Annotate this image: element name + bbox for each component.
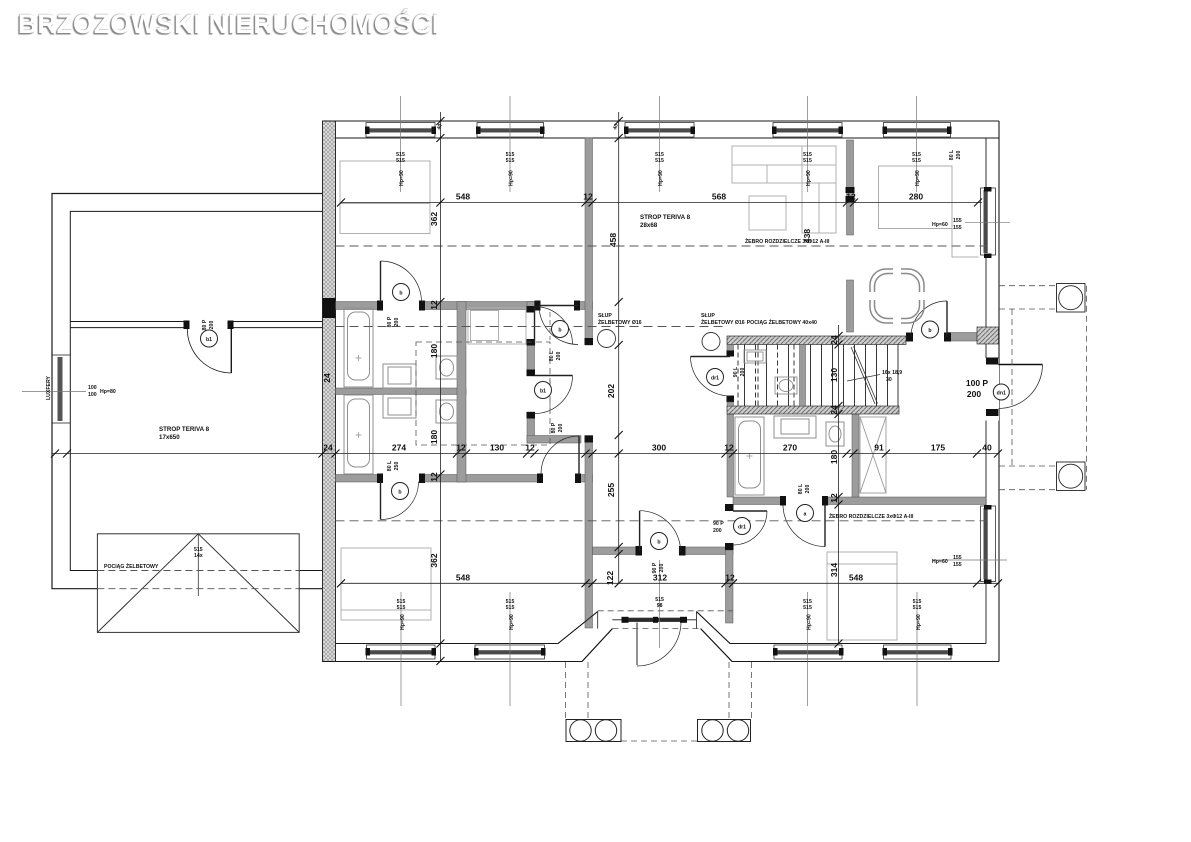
svg-text:Hp=60: Hp=60: [932, 559, 948, 565]
svg-text:250: 250: [394, 462, 400, 471]
svg-text:515: 515: [655, 158, 664, 164]
svg-text:200: 200: [209, 321, 215, 330]
svg-text:Hp=90: Hp=90: [807, 614, 813, 630]
svg-text:STROP TERIVA 8: STROP TERIVA 8: [640, 214, 691, 221]
svg-text:80 L: 80 L: [387, 460, 393, 471]
svg-text:155: 155: [953, 562, 962, 568]
svg-text:Hp=90: Hp=90: [509, 614, 515, 630]
svg-text:100: 100: [88, 385, 97, 391]
svg-text:Hp=90: Hp=90: [658, 170, 664, 186]
svg-text:b1: b1: [540, 389, 546, 395]
svg-text:Hp=80: Hp=80: [100, 389, 116, 395]
svg-text:90 P: 90 P: [713, 521, 724, 527]
svg-text:90 L: 90 L: [733, 366, 739, 377]
svg-text:ŻELBETOWY Ø16: ŻELBETOWY Ø16: [598, 319, 642, 326]
svg-text:80 L: 80 L: [949, 149, 955, 160]
svg-text:90 P: 90 P: [652, 562, 658, 573]
svg-text:80 L: 80 L: [549, 350, 555, 361]
svg-text:Hp=90: Hp=90: [400, 614, 406, 630]
svg-text:515: 515: [506, 158, 515, 164]
svg-text:POCIĄG ŻELBETOWY: POCIĄG ŻELBETOWY: [104, 563, 159, 570]
svg-text:80 P: 80 P: [551, 422, 557, 433]
svg-text:Hp=90: Hp=90: [806, 170, 812, 186]
svg-text:200: 200: [805, 485, 811, 494]
svg-text:200: 200: [956, 151, 962, 160]
svg-text:40: 40: [436, 123, 444, 131]
svg-text:98: 98: [657, 603, 663, 609]
svg-text:515: 515: [506, 605, 515, 611]
svg-text:200: 200: [394, 318, 400, 327]
svg-text:LUXFERY: LUXFERY: [46, 375, 52, 400]
svg-text:b: b: [399, 291, 402, 297]
svg-text:Hp=60: Hp=60: [932, 222, 948, 228]
svg-text:SŁUP: SŁUP: [598, 313, 612, 319]
svg-text:515: 515: [803, 158, 812, 164]
svg-text:515: 515: [913, 605, 922, 611]
svg-text:b: b: [928, 328, 931, 334]
svg-text:dn1: dn1: [997, 391, 1006, 397]
svg-text:14x: 14x: [194, 553, 203, 559]
svg-text:STROP TERIVA 8: STROP TERIVA 8: [159, 426, 210, 433]
svg-text:SŁUP: SŁUP: [701, 313, 715, 319]
svg-text:Hp=90: Hp=90: [916, 614, 922, 630]
svg-text:a: a: [804, 512, 807, 518]
svg-text:b: b: [558, 328, 561, 334]
svg-text:100: 100: [88, 392, 97, 398]
svg-text:ŻELBETOWY Ø16 POCIĄG ŻELBETOW: ŻELBETOWY Ø16 POCIĄG ŻELBETOWY 40x40: [701, 319, 817, 326]
svg-text:200: 200: [558, 424, 564, 433]
svg-text:40: 40: [612, 123, 620, 131]
svg-text:80 P: 80 P: [387, 316, 393, 327]
svg-text:155: 155: [953, 555, 962, 561]
svg-text:b: b: [398, 490, 401, 496]
svg-text:515: 515: [803, 605, 812, 611]
svg-text:16x 18,9: 16x 18,9: [882, 370, 902, 376]
svg-text:200: 200: [967, 389, 981, 399]
svg-text:b1: b1: [206, 337, 212, 343]
svg-text:ŻEBRO ROZDZIELCZE 3xΦ12 A-III: ŻEBRO ROZDZIELCZE 3xΦ12 A-III: [829, 513, 914, 520]
svg-text:200: 200: [713, 528, 722, 534]
svg-text:28x68: 28x68: [640, 222, 658, 229]
svg-text:Hp=90: Hp=90: [915, 170, 921, 186]
svg-text:17x650: 17x650: [159, 434, 180, 441]
svg-text:Hp=90: Hp=90: [509, 170, 515, 186]
svg-text:515: 515: [912, 158, 921, 164]
svg-text:80 P: 80 P: [202, 319, 208, 330]
svg-text:200: 200: [556, 352, 562, 361]
svg-text:200: 200: [740, 368, 746, 377]
svg-text:dr1: dr1: [711, 376, 719, 382]
svg-text:515: 515: [397, 605, 406, 611]
svg-text:dr1: dr1: [738, 525, 746, 531]
svg-text:80 L: 80 L: [798, 483, 804, 494]
svg-text:30: 30: [886, 377, 892, 383]
svg-text:155: 155: [953, 218, 962, 224]
svg-text:155: 155: [953, 225, 962, 231]
svg-text:200: 200: [659, 564, 665, 573]
svg-text:100 P: 100 P: [966, 378, 989, 388]
svg-text:ŻEBRO ROZDZIELCZE 3xΦ12 A-III: ŻEBRO ROZDZIELCZE 3xΦ12 A-III: [745, 238, 830, 245]
svg-text:b: b: [657, 540, 660, 546]
svg-text:Hp=90: Hp=90: [399, 170, 405, 186]
svg-text:515: 515: [396, 158, 405, 164]
